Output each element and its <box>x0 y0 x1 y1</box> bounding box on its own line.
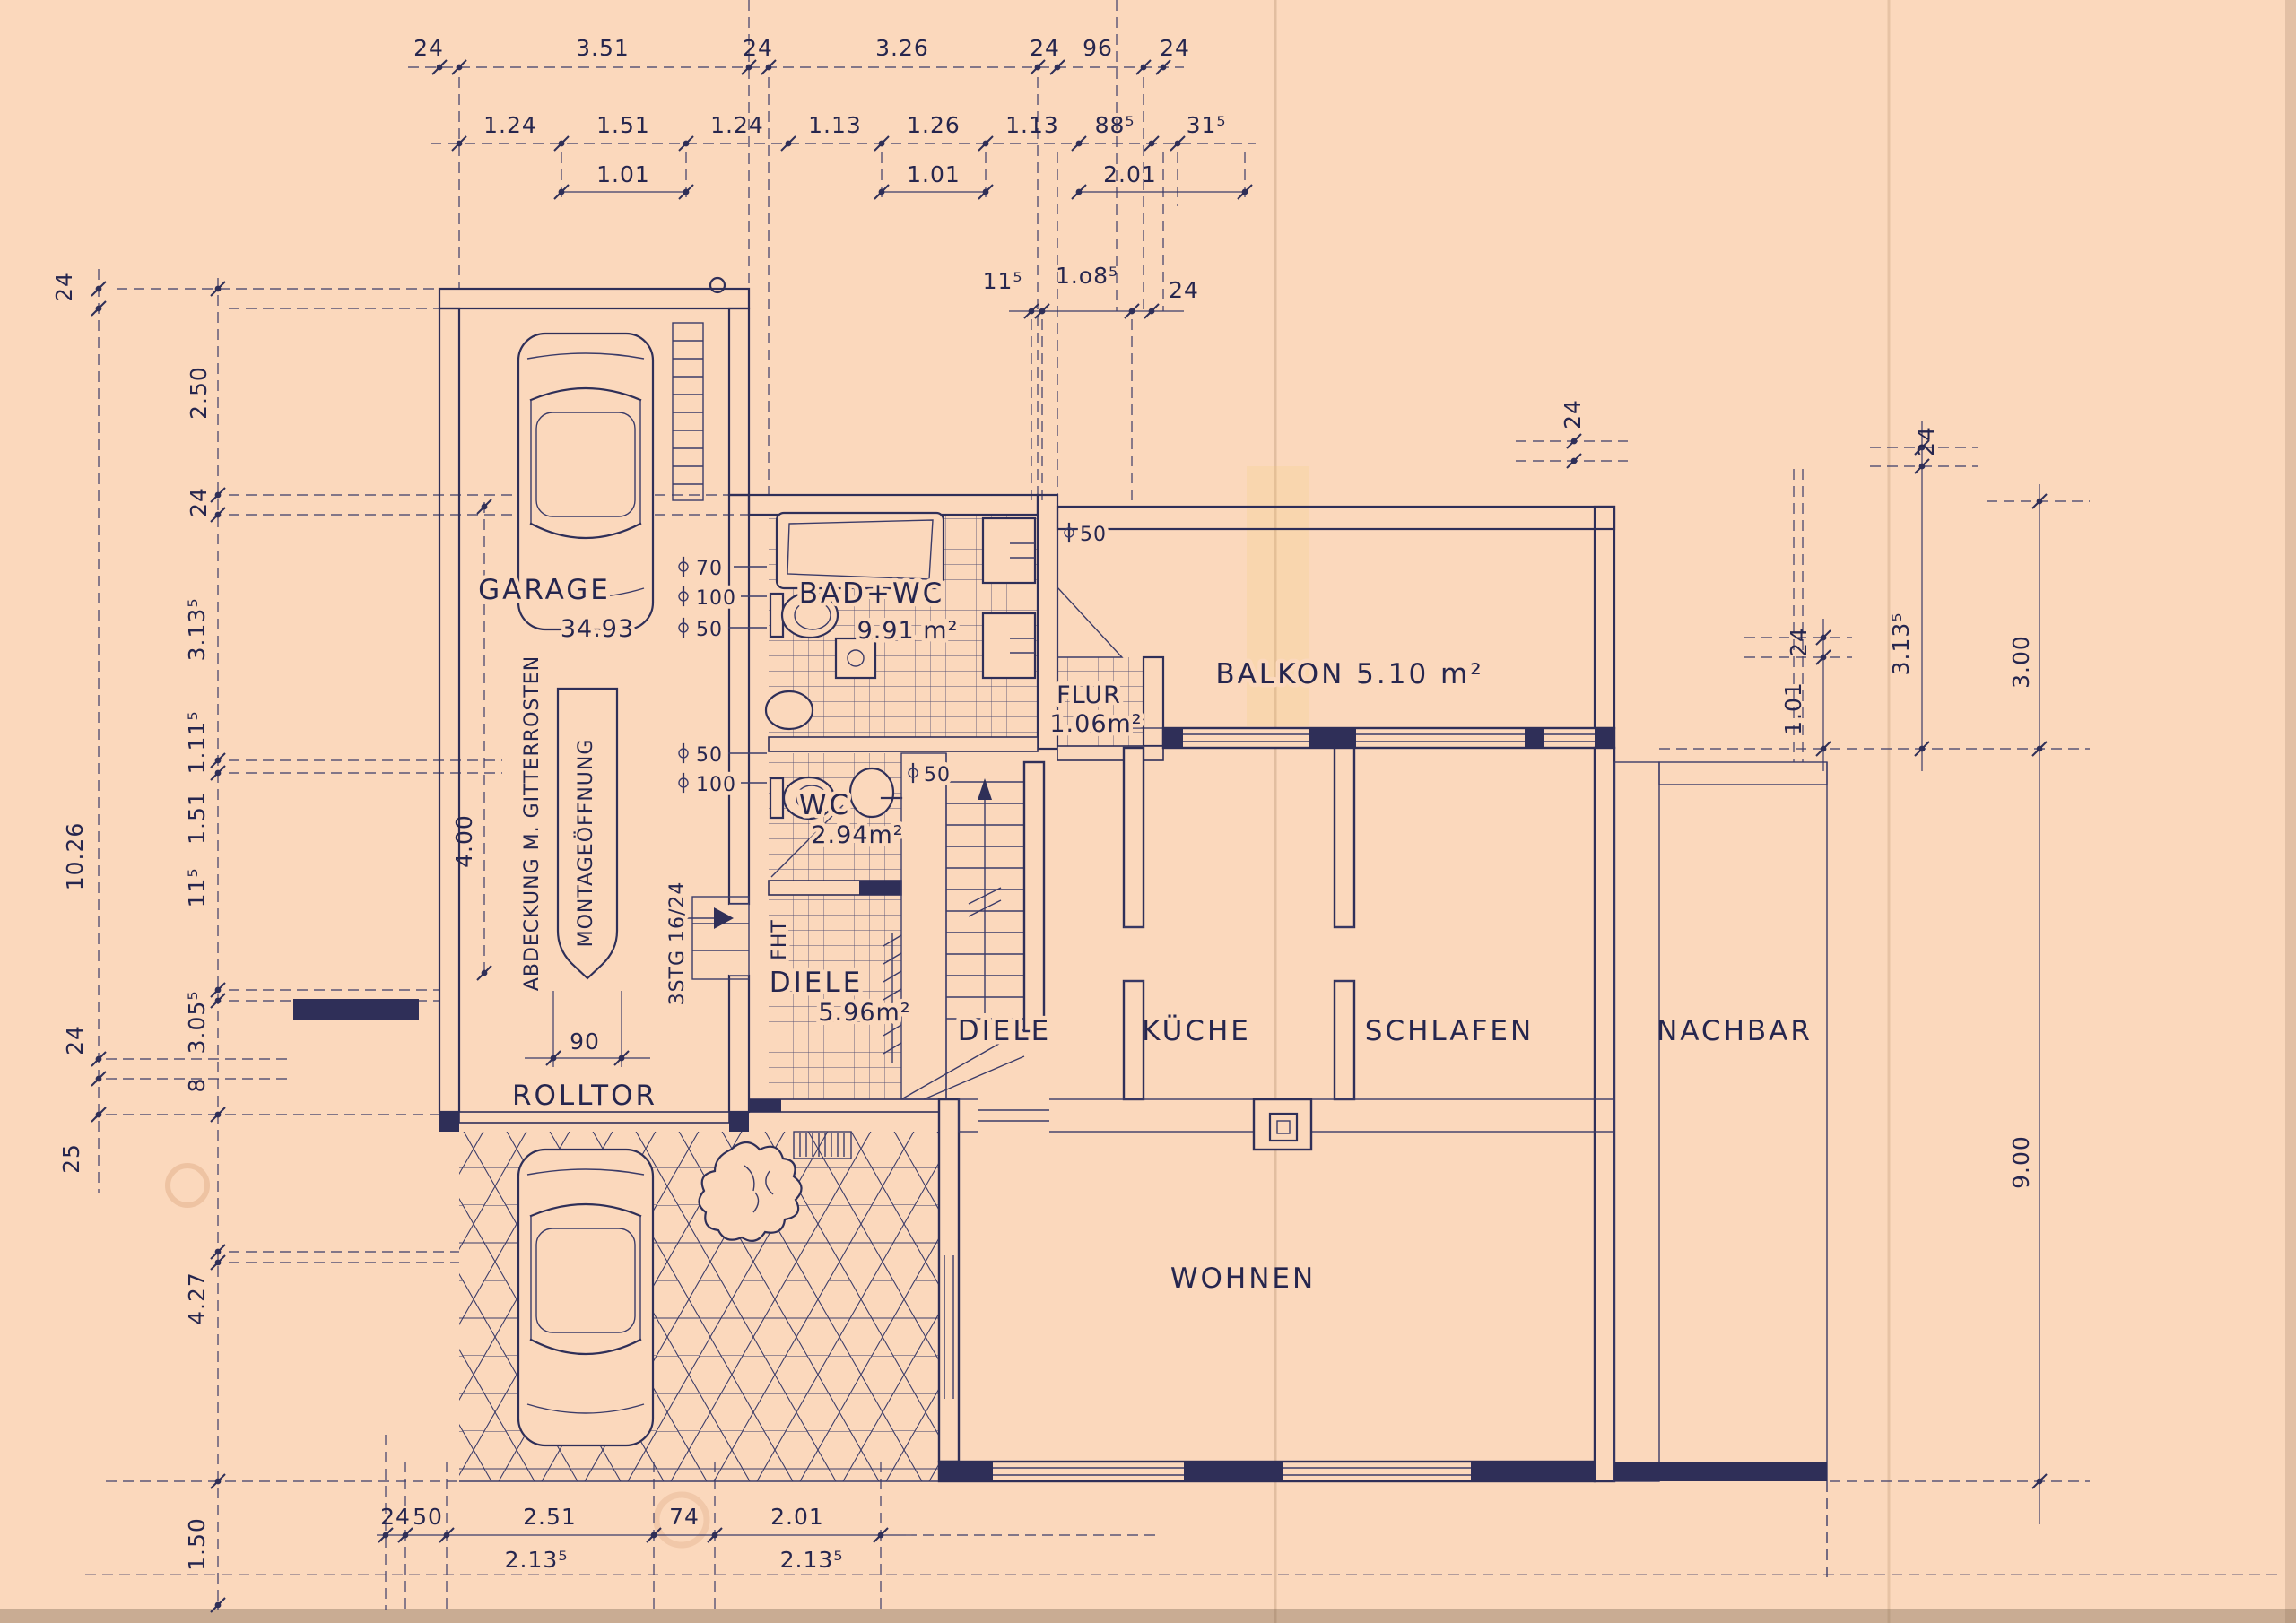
flur-area: 1.06m² <box>1049 710 1142 738</box>
kueche-label: KÜCHE <box>1142 1014 1251 1047</box>
dim-left-outer-top: 24 <box>51 272 77 302</box>
riser-bad-100: 100 <box>696 587 736 610</box>
wohnen-label: WOHNEN <box>1170 1263 1316 1295</box>
witness-lines <box>85 0 2278 1610</box>
nachbar-label: NACHBAR <box>1657 1015 1813 1047</box>
dim-left-outer-b: 25 <box>58 1143 84 1174</box>
riser-wc-100: 100 <box>696 774 736 796</box>
wc-area: 2.94m² <box>811 821 903 849</box>
bad-label: BAD+WC <box>799 577 945 610</box>
boundary-wall-stub <box>293 999 419 1020</box>
scan-artifacts <box>0 0 2296 1623</box>
dim-bot-4: 2.01 <box>770 1504 824 1530</box>
wc-label: WC <box>799 789 851 821</box>
dim-left-0: 2.50 <box>186 366 212 420</box>
staircase <box>901 753 1024 1099</box>
dim-left-3: 1.11⁵ <box>184 711 210 775</box>
dim-bot-sub-0: 2.13⁵ <box>505 1547 569 1573</box>
rolltor-label: ROLLTOR <box>512 1080 657 1112</box>
dim-top1-2: 24 <box>743 35 773 61</box>
garage-grate <box>673 278 725 500</box>
dim-top2-6: 88⁵ <box>1095 112 1135 138</box>
dim-right-walltop: 24 <box>1913 426 1939 456</box>
dim-top2-2: 1.24 <box>710 112 764 138</box>
dim-left-5: 11⁵ <box>184 868 210 908</box>
tor-width: 90 <box>570 1028 600 1055</box>
dim-right-balkonwall: 24 <box>1560 399 1586 430</box>
dim-bot-2: 2.51 <box>523 1504 577 1530</box>
riser-bad-70: 70 <box>696 558 723 580</box>
dim-top1-4: 24 <box>1030 35 1060 61</box>
dim-right-total: 9.00 <box>2008 1135 2034 1189</box>
diele-eg-area: 5.96m² <box>818 999 910 1027</box>
dim-small-2: 24 <box>1169 277 1199 303</box>
partition-walls <box>959 748 1614 1150</box>
flur-label: FLUR <box>1057 681 1121 709</box>
dim-top1-3: 3.26 <box>875 35 929 61</box>
bad-area: 9.91 m² <box>857 617 959 645</box>
dim-top2-5: 1.13 <box>1005 112 1059 138</box>
diele-eg-label: DIELE <box>770 967 863 999</box>
dim-right-balkonlen: 3.00 <box>2008 635 2034 689</box>
dim-left-lower-b: 1.50 <box>184 1517 210 1571</box>
dim-top3-1: 1.01 <box>907 161 961 187</box>
garage-area: 34.93 <box>561 615 634 643</box>
riser-wc-right-50: 50 <box>924 764 951 786</box>
garage-label: GARAGE <box>478 574 611 606</box>
floorplan-drawing: GARAGE 34.93 BAD+WC 9.91 m² FLUR 1.06m² … <box>0 0 2296 1623</box>
dim-bot-sub-1: 2.13⁵ <box>780 1547 844 1573</box>
dim-small-1: 1.o8⁵ <box>1056 263 1118 289</box>
diele-label: DIELE <box>958 1015 1051 1047</box>
dim-left-outer-a: 24 <box>62 1025 88 1055</box>
steps-note: 3STG 16/24 <box>666 881 689 1006</box>
dim-right-nwall: 24 <box>1786 627 1812 657</box>
dim-top3-2: 2.01 <box>1103 161 1157 187</box>
dim-top1-6: 24 <box>1160 35 1190 61</box>
dim-left-lower-a: 4.27 <box>184 1271 210 1325</box>
dim-left-2: 3.13⁵ <box>184 598 210 662</box>
dim-top3-0: 1.01 <box>596 161 650 187</box>
dim-left-7: 8 <box>184 1078 210 1093</box>
garage-depth: 4.00 <box>451 814 477 868</box>
dim-top2-3: 1.13 <box>808 112 862 138</box>
dim-top2-0: 1.24 <box>483 112 537 138</box>
dim-small-0: 11⁵ <box>983 268 1023 294</box>
dim-right-schlafen: 3.13⁵ <box>1888 612 1914 676</box>
dim-top1-1: 3.51 <box>576 35 630 61</box>
rolltor-door <box>459 1112 729 1123</box>
balkon-label: BALKON 5.10 m² <box>1215 658 1483 690</box>
dim-top1-0: 24 <box>413 35 444 61</box>
dim-top1-5: 96 <box>1083 35 1113 61</box>
dimension-ticks <box>91 60 2047 1612</box>
dimension-lines <box>99 67 2039 1610</box>
fht-note: FHT <box>769 919 791 960</box>
abdeckung-note: ABDECKUNG M. GITTERROSTEN <box>521 655 544 991</box>
dim-bot-0: 24 <box>380 1504 411 1530</box>
riser-wc-50: 50 <box>696 744 723 767</box>
dim-top2-1: 1.51 <box>596 112 650 138</box>
dim-right-noff: 1.01 <box>1780 681 1806 735</box>
riser-flur-50: 50 <box>1080 524 1107 546</box>
neighbor-building <box>1614 762 1827 1583</box>
montage-note: MONTAGEÖFFNUNG <box>574 739 597 948</box>
dim-left-6: 3.05⁵ <box>184 991 210 1055</box>
car-on-driveway <box>518 1150 653 1445</box>
dim-left-1: 24 <box>186 487 212 517</box>
dim-bot-1: 50 <box>413 1504 443 1530</box>
riser-bad-50: 50 <box>696 619 723 641</box>
dim-bot-3: 74 <box>669 1504 700 1530</box>
dim-top2-4: 1.26 <box>907 112 961 138</box>
dim-top2-7: 31⁵ <box>1187 112 1227 138</box>
schlafen-label: SCHLAFEN <box>1365 1015 1534 1047</box>
blueprint-sheet: GARAGE 34.93 BAD+WC 9.91 m² FLUR 1.06m² … <box>0 0 2296 1623</box>
dim-left-4: 1.51 <box>184 791 210 845</box>
dim-left-span: 10.26 <box>62 822 88 891</box>
